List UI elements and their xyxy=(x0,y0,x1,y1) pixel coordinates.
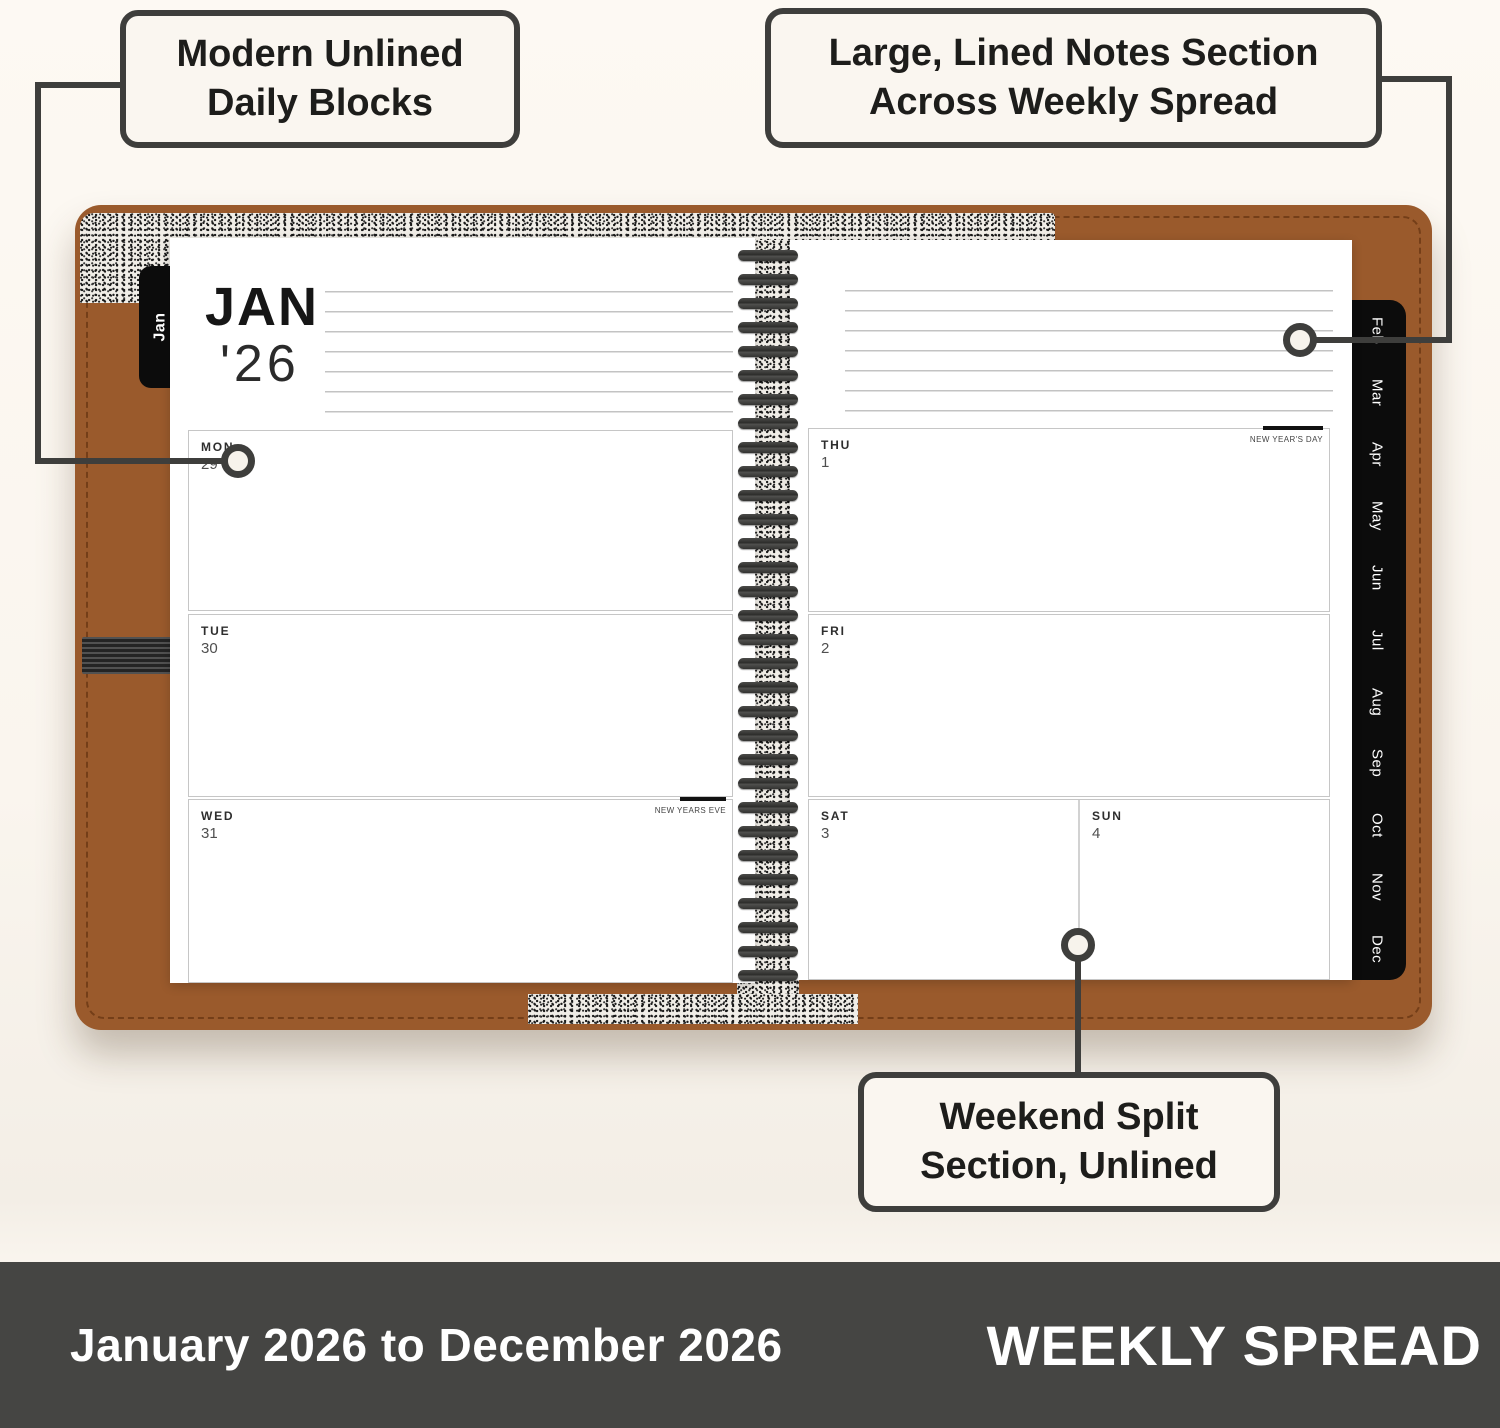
day-date-fri: 2 xyxy=(821,640,846,657)
spiral-coil xyxy=(738,802,798,813)
day-block-wed: WED 31 NEW YEARS EVE xyxy=(188,799,733,983)
day-block-tue: TUE 30 xyxy=(188,614,733,797)
tab-dec: Dec xyxy=(1348,918,1406,980)
connector-daily-blocks-h1 xyxy=(38,82,122,88)
day-label-thu: THU xyxy=(821,438,851,452)
tab-feb: Feb xyxy=(1348,300,1406,362)
tab-may: May xyxy=(1348,485,1406,547)
spiral-coil xyxy=(738,634,798,645)
tab-jun: Jun xyxy=(1348,547,1406,609)
day-label-sun: SUN xyxy=(1092,809,1123,823)
day-date-sun: 4 xyxy=(1092,825,1123,842)
day-block-thu: THU 1 NEW YEAR'S DAY xyxy=(808,428,1330,612)
connector-daily-blocks-h2 xyxy=(35,458,227,464)
month-title: JAN xyxy=(205,280,319,334)
page-left: JAN '26 MON 29 TUE 30 WED 31 NEW YEARS E… xyxy=(170,238,755,983)
notes-lines-right xyxy=(845,290,1333,414)
connector-notes-h2 xyxy=(1313,337,1452,343)
callout-notes-line2: Across Weekly Spread xyxy=(869,78,1278,127)
holiday-marker-thu: NEW YEAR'S DAY xyxy=(1250,426,1323,444)
callout-weekend-line2: Section, Unlined xyxy=(920,1142,1218,1191)
spiral-coil xyxy=(738,898,798,909)
marker-notes xyxy=(1283,323,1317,357)
tab-sep: Sep xyxy=(1348,733,1406,795)
day-label-sat: SAT xyxy=(821,809,850,823)
spiral-coil xyxy=(738,970,798,981)
spiral-coil xyxy=(738,682,798,693)
tab-nov: Nov xyxy=(1348,856,1406,918)
tab-oct: Oct xyxy=(1348,795,1406,857)
connector-daily-blocks-v xyxy=(35,82,41,463)
day-block-mon: MON 29 xyxy=(188,430,733,611)
spiral-coil xyxy=(738,754,798,765)
day-label-fri: FRI xyxy=(821,624,846,638)
day-label-wed: WED xyxy=(201,809,234,823)
elastic-band xyxy=(82,637,173,674)
holiday-bar xyxy=(1263,426,1323,430)
callout-notes-line1: Large, Lined Notes Section xyxy=(829,29,1319,78)
page-right: THU 1 NEW YEAR'S DAY FRI 2 SAT 3 xyxy=(790,240,1352,980)
spiral-coil xyxy=(738,250,798,261)
spiral-coil xyxy=(738,850,798,861)
spiral-coil xyxy=(738,706,798,717)
callout-weekend-line1: Weekend Split xyxy=(939,1093,1198,1142)
spiral-coil xyxy=(738,730,798,741)
holiday-label-thu: NEW YEAR'S DAY xyxy=(1250,435,1323,444)
day-date-tue: 30 xyxy=(201,640,230,657)
spiral-coil xyxy=(738,658,798,669)
day-date-thu: 1 xyxy=(821,454,851,471)
tab-jul: Jul xyxy=(1348,609,1406,671)
day-label-tue: TUE xyxy=(201,624,230,638)
callout-daily-blocks: Modern Unlined Daily Blocks xyxy=(120,10,520,148)
spiral-coil xyxy=(738,394,798,405)
tab-aug: Aug xyxy=(1348,671,1406,733)
tab-apr: Apr xyxy=(1348,424,1406,486)
day-block-fri: FRI 2 xyxy=(808,614,1330,797)
footer-spread-type: WEEKLY SPREAD xyxy=(987,1313,1482,1378)
marker-weekend xyxy=(1061,928,1095,962)
spiral-coil xyxy=(738,778,798,789)
spiral-binding xyxy=(738,250,798,1010)
callout-daily-blocks-line1: Modern Unlined xyxy=(176,30,463,79)
spiral-coil xyxy=(738,442,798,453)
spiral-coil xyxy=(738,466,798,477)
notes-lines-left xyxy=(325,291,733,415)
spiral-coil xyxy=(738,274,798,285)
holiday-bar xyxy=(680,797,726,801)
spiral-coil xyxy=(738,538,798,549)
spiral-coil xyxy=(738,874,798,885)
tab-mar: Mar xyxy=(1348,362,1406,424)
day-date-sat: 3 xyxy=(821,825,850,842)
spiral-coil xyxy=(738,346,798,357)
holiday-marker-wed: NEW YEARS EVE xyxy=(655,797,726,815)
month-tab-strip: Feb Mar Apr May Jun Jul Aug Sep Oct Nov … xyxy=(1348,300,1406,980)
connector-notes-v xyxy=(1446,76,1452,343)
spiral-coil xyxy=(738,298,798,309)
day-date-wed: 31 xyxy=(201,825,234,842)
holiday-label-wed: NEW YEARS EVE xyxy=(655,806,726,815)
callout-daily-blocks-line2: Daily Blocks xyxy=(207,79,433,128)
connector-notes-h1 xyxy=(1378,76,1452,82)
spiral-coil xyxy=(738,322,798,333)
spiral-coil xyxy=(738,514,798,525)
spiral-coil xyxy=(738,418,798,429)
spiral-coil xyxy=(738,610,798,621)
spiral-coil xyxy=(738,490,798,501)
product-image: Jan Feb Mar Apr May Jun Jul Aug Sep Oct … xyxy=(0,0,1500,1428)
footer-bar: January 2026 to December 2026 WEEKLY SPR… xyxy=(0,1262,1500,1428)
spiral-coil xyxy=(738,826,798,837)
year-title: '26 xyxy=(220,338,300,390)
connector-weekend-v xyxy=(1075,959,1081,1075)
spiral-coil xyxy=(738,370,798,381)
footer-date-range: January 2026 to December 2026 xyxy=(70,1318,783,1372)
fabric-cover-bottom xyxy=(528,994,858,1024)
callout-notes-section: Large, Lined Notes Section Across Weekly… xyxy=(765,8,1382,148)
spiral-coil xyxy=(738,946,798,957)
callout-weekend-split: Weekend Split Section, Unlined xyxy=(858,1072,1280,1212)
spiral-coil xyxy=(738,922,798,933)
spiral-coil xyxy=(738,562,798,573)
tab-jan-label: Jan xyxy=(152,312,170,341)
marker-daily-blocks xyxy=(221,444,255,478)
spiral-coil xyxy=(738,586,798,597)
